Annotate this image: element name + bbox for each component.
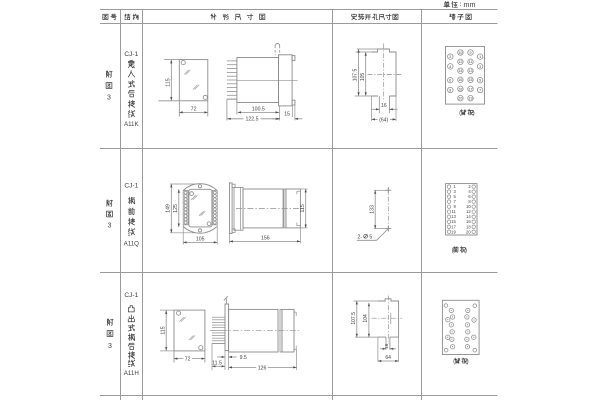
svg-text:A11H: A11H xyxy=(124,370,139,377)
svg-text:149: 149 xyxy=(165,204,171,213)
svg-text:64: 64 xyxy=(385,355,391,361)
svg-text:15: 15 xyxy=(284,111,290,117)
svg-text:107.5: 107.5 xyxy=(353,69,359,82)
svg-text:10: 10 xyxy=(458,51,462,55)
svg-text:105: 105 xyxy=(360,73,366,82)
svg-text:133: 133 xyxy=(369,205,375,214)
svg-text:1: 1 xyxy=(479,55,481,59)
svg-text:16: 16 xyxy=(458,78,462,82)
svg-text:20: 20 xyxy=(458,97,462,101)
svg-text:A11Q: A11Q xyxy=(124,241,140,248)
svg-text:13: 13 xyxy=(469,69,473,73)
svg-text:104: 104 xyxy=(363,314,369,323)
svg-text:4: 4 xyxy=(449,65,451,69)
svg-text:115: 115 xyxy=(165,78,171,86)
svg-text:9.5: 9.5 xyxy=(240,355,247,361)
svg-text:156: 156 xyxy=(261,236,270,242)
svg-text:107.5: 107.5 xyxy=(351,312,357,325)
svg-text:6: 6 xyxy=(449,79,451,83)
svg-text:19: 19 xyxy=(451,229,456,234)
svg-text:CJ-1: CJ-1 xyxy=(124,182,138,189)
svg-text:2: 2 xyxy=(449,55,451,59)
svg-text:CJ-1: CJ-1 xyxy=(124,292,138,299)
svg-text:9: 9 xyxy=(470,51,472,55)
svg-text:3: 3 xyxy=(479,65,481,69)
svg-text:126: 126 xyxy=(258,365,267,371)
svg-text:7: 7 xyxy=(479,88,481,92)
svg-text:115: 115 xyxy=(160,326,166,334)
svg-text:72: 72 xyxy=(191,107,197,113)
svg-text:125: 125 xyxy=(173,204,179,213)
svg-text:5: 5 xyxy=(479,79,481,83)
svg-text:100.5: 100.5 xyxy=(252,106,265,112)
svg-text:): ) xyxy=(465,247,467,254)
svg-text:(64): (64) xyxy=(379,117,388,123)
svg-text:mm: mm xyxy=(464,0,476,9)
svg-text:16: 16 xyxy=(384,343,389,349)
svg-text:3: 3 xyxy=(107,95,111,102)
svg-text:CJ-1: CJ-1 xyxy=(124,51,138,58)
svg-text:15: 15 xyxy=(469,78,473,82)
svg-text:72: 72 xyxy=(185,357,191,363)
svg-text:): ) xyxy=(473,110,475,117)
svg-text:11: 11 xyxy=(469,60,473,64)
svg-text:18: 18 xyxy=(458,87,462,91)
svg-text:17: 17 xyxy=(469,87,473,91)
svg-text:3: 3 xyxy=(108,343,112,350)
svg-text:105: 105 xyxy=(196,237,205,243)
svg-text:11.5: 11.5 xyxy=(212,360,222,366)
svg-text:A11K: A11K xyxy=(124,121,140,128)
svg-text:16: 16 xyxy=(381,103,387,109)
svg-text:12: 12 xyxy=(458,60,462,64)
svg-text:5: 5 xyxy=(369,235,372,241)
svg-text:8: 8 xyxy=(449,88,451,92)
svg-text:115: 115 xyxy=(300,204,306,212)
svg-text:): ) xyxy=(467,358,469,365)
svg-text:19: 19 xyxy=(469,97,473,101)
svg-text:14: 14 xyxy=(458,69,462,73)
svg-text:3: 3 xyxy=(108,223,112,230)
svg-text:2-: 2- xyxy=(357,235,362,241)
svg-text:122.5: 122.5 xyxy=(246,117,259,123)
svg-text:20: 20 xyxy=(466,229,471,234)
